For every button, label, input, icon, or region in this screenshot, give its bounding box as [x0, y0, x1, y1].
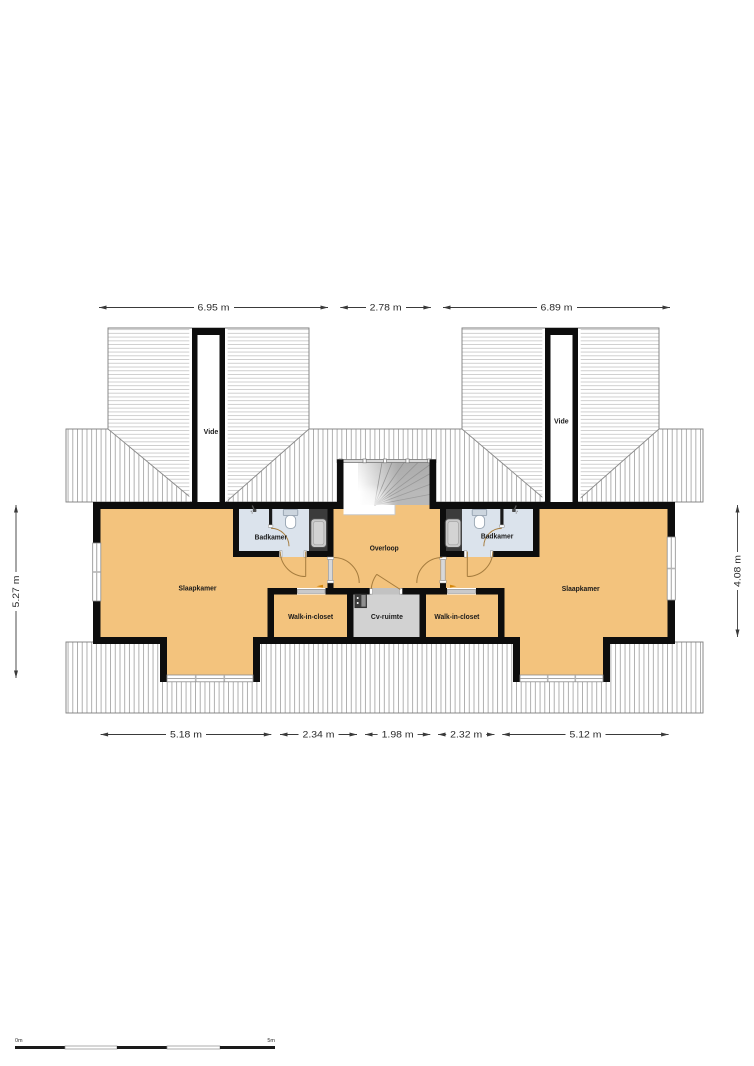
- svg-text:5.27 m: 5.27 m: [11, 575, 21, 607]
- svg-text:Walk-in-closet: Walk-in-closet: [434, 612, 479, 621]
- svg-text:0m: 0m: [15, 1038, 23, 1044]
- svg-text:Slaapkamer: Slaapkamer: [562, 584, 600, 593]
- svg-text:5.18 m: 5.18 m: [170, 729, 202, 739]
- svg-text:5.12 m: 5.12 m: [570, 729, 602, 739]
- svg-text:2.32 m: 2.32 m: [450, 729, 482, 739]
- svg-text:Badkamer: Badkamer: [481, 532, 514, 541]
- svg-text:2.78 m: 2.78 m: [370, 302, 402, 312]
- svg-text:1.98 m: 1.98 m: [382, 729, 414, 739]
- svg-text:Cv-ruimte: Cv-ruimte: [371, 612, 403, 621]
- svg-text:5m: 5m: [267, 1038, 275, 1044]
- svg-text:4.08 m: 4.08 m: [733, 555, 743, 587]
- svg-text:Slaapkamer: Slaapkamer: [179, 583, 217, 592]
- svg-text:2.34 m: 2.34 m: [303, 729, 335, 739]
- svg-text:Vide: Vide: [554, 419, 569, 426]
- svg-text:Vide: Vide: [204, 429, 219, 436]
- svg-text:6.95 m: 6.95 m: [198, 302, 230, 312]
- svg-text:Overloop: Overloop: [370, 543, 399, 552]
- svg-text:6.89 m: 6.89 m: [541, 302, 573, 312]
- svg-text:Badkamer: Badkamer: [255, 533, 288, 542]
- svg-text:Walk-in-closet: Walk-in-closet: [288, 612, 333, 621]
